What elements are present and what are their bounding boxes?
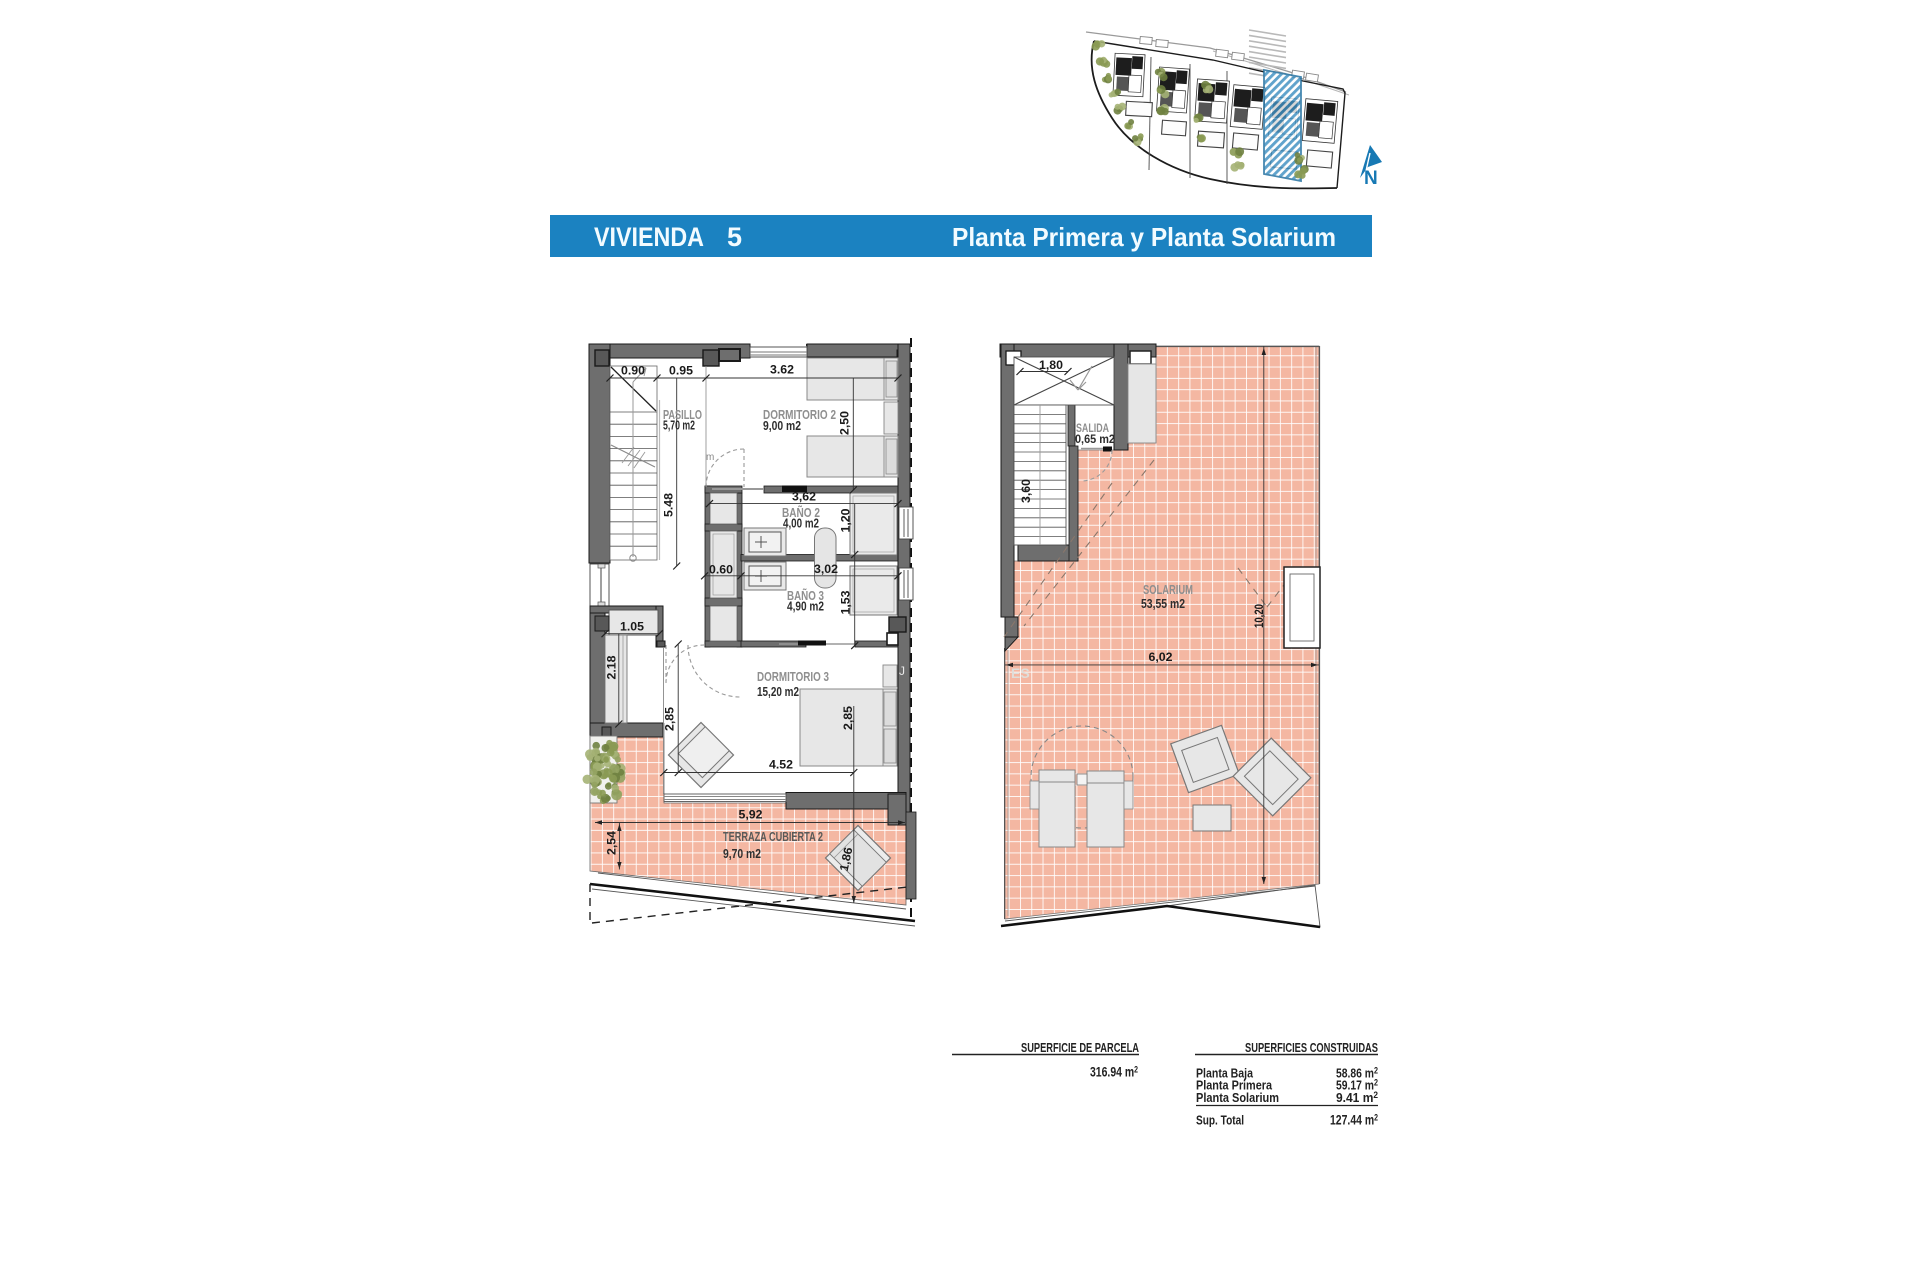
svg-text:SUPERFICIES CONSTRUIDAS: SUPERFICIES CONSTRUIDAS — [1245, 1040, 1378, 1055]
svg-text:J: J — [899, 664, 905, 678]
svg-text:0.95: 0.95 — [669, 364, 693, 378]
svg-text:4,90 m2: 4,90 m2 — [787, 600, 824, 614]
svg-text:2,85: 2,85 — [841, 706, 855, 730]
svg-text:3.62: 3.62 — [770, 363, 794, 377]
svg-text:5,70 m2: 5,70 m2 — [663, 419, 695, 433]
svg-text:5,92: 5,92 — [739, 808, 763, 822]
svg-text:5.48: 5.48 — [662, 493, 676, 517]
svg-text:N: N — [1364, 168, 1378, 189]
svg-text:0.90: 0.90 — [621, 364, 645, 378]
svg-text:1,53: 1,53 — [839, 590, 853, 614]
svg-text:2,54: 2,54 — [605, 831, 619, 855]
svg-text:15,20 m2: 15,20 m2 — [757, 684, 799, 699]
svg-text:9.41 m2: 9.41 m2 — [1336, 1090, 1378, 1105]
svg-text:Sup. Total: Sup. Total — [1196, 1113, 1244, 1128]
svg-text:1,80: 1,80 — [1039, 358, 1063, 372]
svg-text:DORMITORIO 3: DORMITORIO 3 — [757, 669, 829, 684]
svg-text:TERRAZA CUBIERTA 2: TERRAZA CUBIERTA 2 — [723, 829, 823, 844]
svg-text:4,00 m2: 4,00 m2 — [783, 517, 819, 531]
svg-text:3,02: 3,02 — [814, 562, 838, 576]
svg-text:316.94 m2: 316.94 m2 — [1090, 1065, 1138, 1080]
svg-text:VIVIENDA: VIVIENDA — [594, 222, 704, 252]
svg-text:0,65 m2: 0,65 m2 — [1075, 432, 1115, 446]
svg-text:SOLARIUM: SOLARIUM — [1143, 583, 1193, 597]
svg-text:53,55 m2: 53,55 m2 — [1141, 597, 1185, 611]
svg-text:4.52: 4.52 — [769, 758, 793, 772]
svg-text:1.05: 1.05 — [620, 619, 644, 633]
svg-text:10,20: 10,20 — [1252, 604, 1266, 628]
svg-text:1,20: 1,20 — [839, 508, 853, 532]
svg-text:m: m — [706, 452, 714, 463]
svg-text:3,60: 3,60 — [1019, 479, 1033, 503]
svg-text:5: 5 — [727, 222, 742, 252]
svg-text:SUPERFICIE DE PARCELA: SUPERFICIE DE PARCELA — [1021, 1040, 1139, 1055]
svg-text:127.44 m2: 127.44 m2 — [1330, 1113, 1378, 1128]
svg-text:6,02: 6,02 — [1149, 650, 1173, 664]
svg-text:2,50: 2,50 — [838, 411, 852, 435]
svg-text:3,62: 3,62 — [792, 490, 816, 504]
svg-text:Planta Primera y Planta Solari: Planta Primera y Planta Solarium — [952, 222, 1336, 252]
svg-text:2,85: 2,85 — [662, 707, 676, 731]
svg-text:9,70 m2: 9,70 m2 — [723, 846, 761, 861]
svg-text:0.60: 0.60 — [709, 563, 733, 577]
svg-text:9,00 m2: 9,00 m2 — [763, 419, 801, 433]
svg-text:2.18: 2.18 — [604, 655, 618, 679]
svg-text:Planta Solarium: Planta Solarium — [1196, 1090, 1279, 1105]
svg-text:ES: ES — [1011, 665, 1030, 681]
